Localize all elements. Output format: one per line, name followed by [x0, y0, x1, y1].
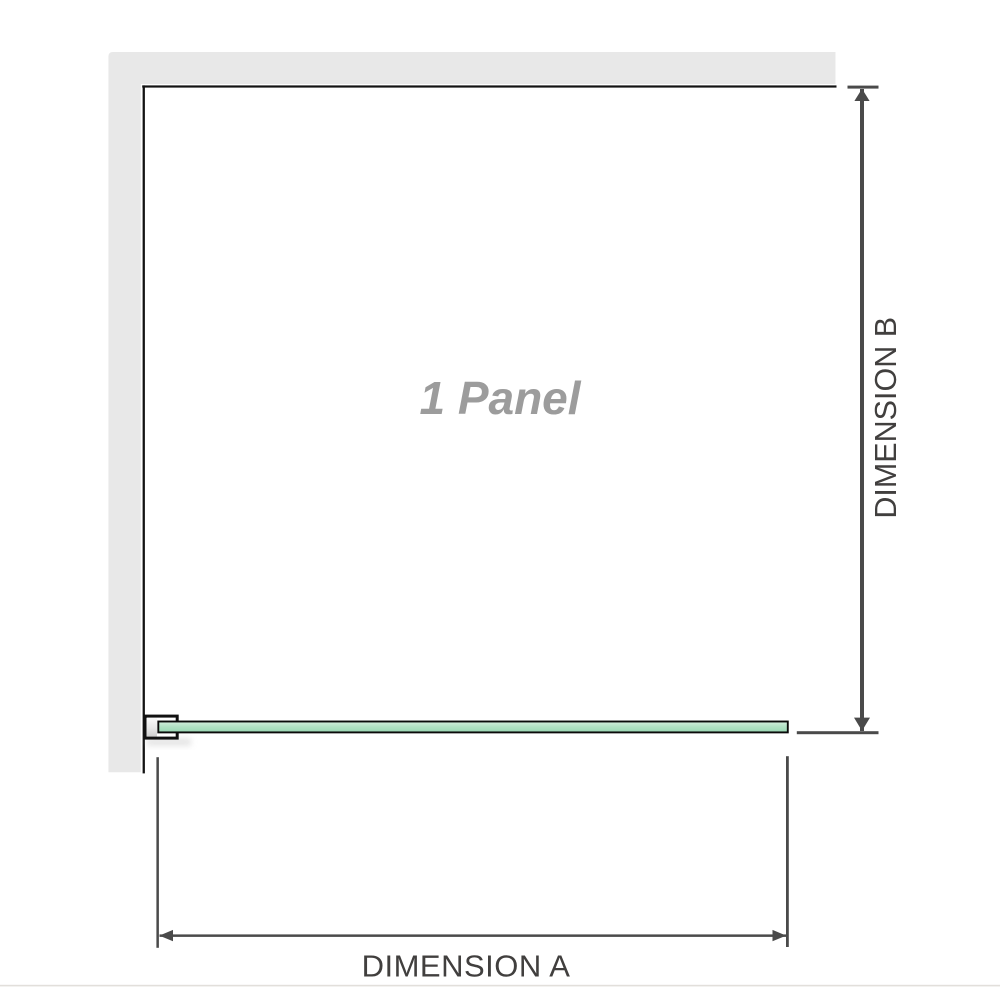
svg-text:DIMENSION A: DIMENSION A	[362, 949, 571, 984]
svg-text:1 Panel: 1 Panel	[419, 372, 581, 424]
svg-text:DIMENSION B: DIMENSION B	[869, 317, 903, 519]
